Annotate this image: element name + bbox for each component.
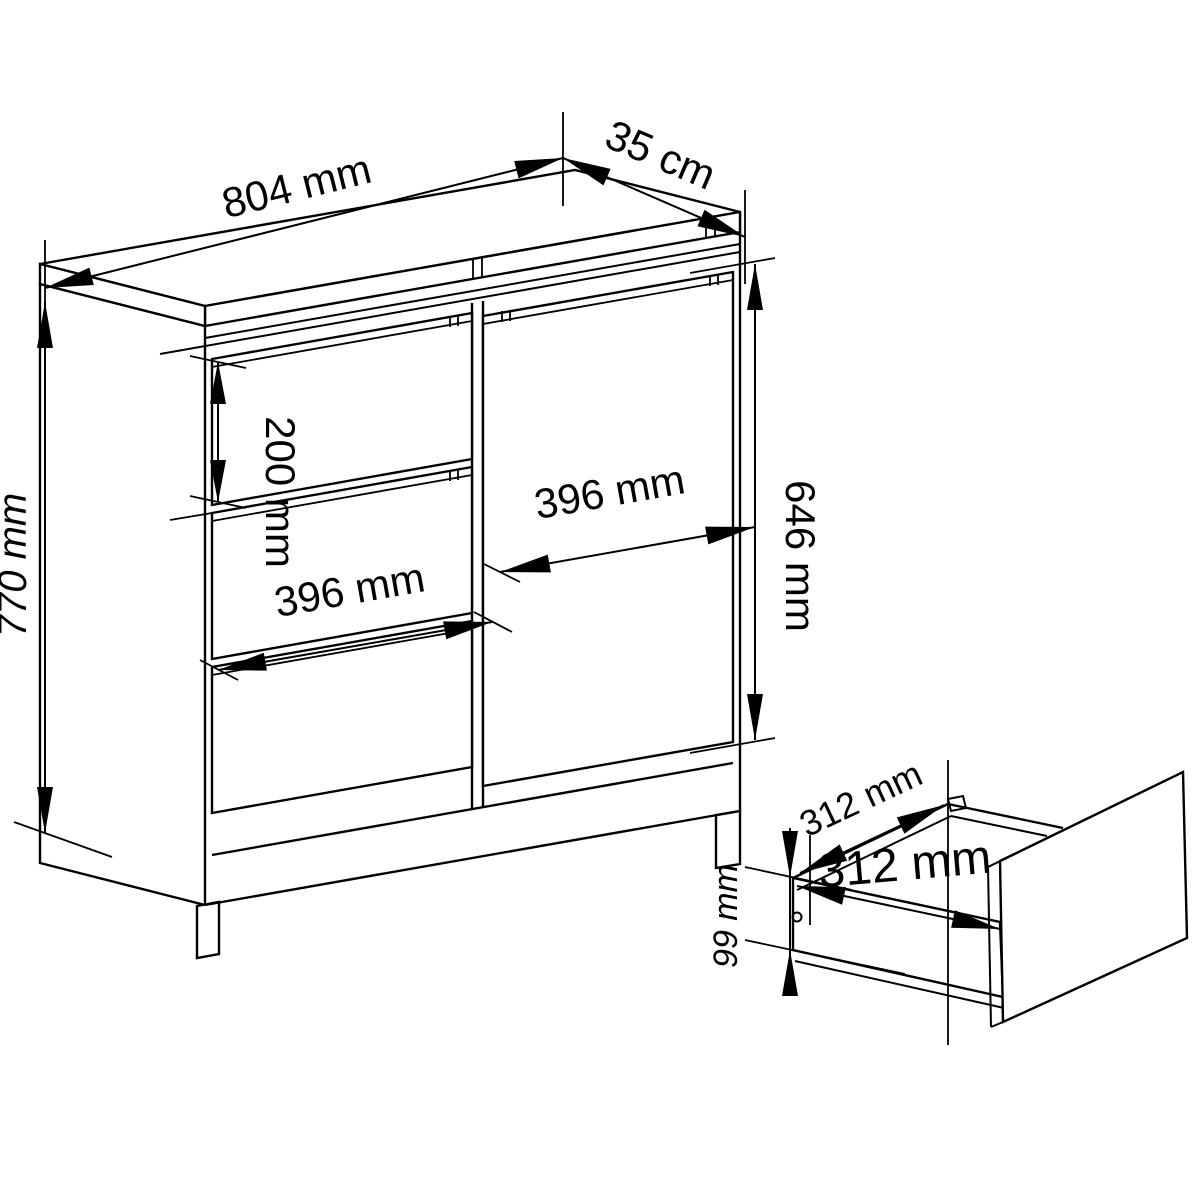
cabinet-right-foot xyxy=(716,811,740,868)
cabinet-left-side-panel xyxy=(40,284,205,905)
dim-door-height-label: 646 mm xyxy=(777,480,824,632)
dim-top-drawer-height-label: 200 mm xyxy=(257,416,304,568)
furniture-dimension-diagram: 804 mm 35 cm 770 mm 200 mm xyxy=(0,0,1200,1200)
technical-drawing-page: 804 mm 35 cm 770 mm 200 mm xyxy=(0,0,1200,1200)
dim-cabinet-height-label: 770 mm xyxy=(0,493,35,638)
cabinet-door xyxy=(483,272,733,786)
dim-drawer-side-height-label: 99 mm xyxy=(707,864,745,968)
cabinet-left-foot xyxy=(197,902,219,958)
